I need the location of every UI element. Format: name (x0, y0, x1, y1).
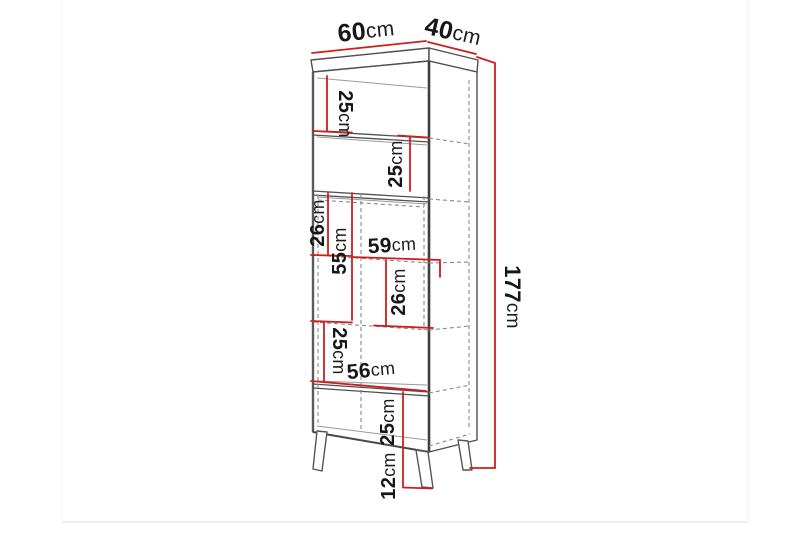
dimension-label-40cm: 40cm (422, 12, 484, 52)
dimension-label-177cm: 177cm (501, 265, 526, 329)
cabinet-leg-front-right (416, 450, 433, 488)
dimension-label-25cm-top: 25cm (334, 90, 356, 137)
dimension-height-177cm: 177cm (470, 57, 526, 468)
dimension-label-26cm-lower: 26cm (388, 268, 410, 315)
dimension-label-26cm-upper: 26cm (307, 199, 329, 246)
dimension-label-12cm: 12cm (378, 452, 400, 499)
cabinet-leg-back-right (458, 440, 472, 470)
dimension-label-59cm: 59cm (367, 232, 417, 258)
cabinet-leg-front-left (313, 431, 327, 471)
dimension-label-25cm-bottom: 25cm (377, 398, 399, 445)
dimension-top-depth-40cm: 40cm (422, 12, 484, 54)
dimension-label-60cm: 60cm (336, 14, 396, 48)
cabinet-right-face (429, 61, 477, 452)
product-diagram-page: 60cm 40cm 177cm 25cm (0, 0, 800, 533)
dimension-label-25cm-second: 25cm (385, 140, 407, 187)
dimension-label-55cm: 55cm (329, 227, 351, 274)
dimension-top-width-60cm: 60cm (312, 14, 426, 53)
furniture-dimension-diagram: 60cm 40cm 177cm 25cm (0, 0, 800, 533)
